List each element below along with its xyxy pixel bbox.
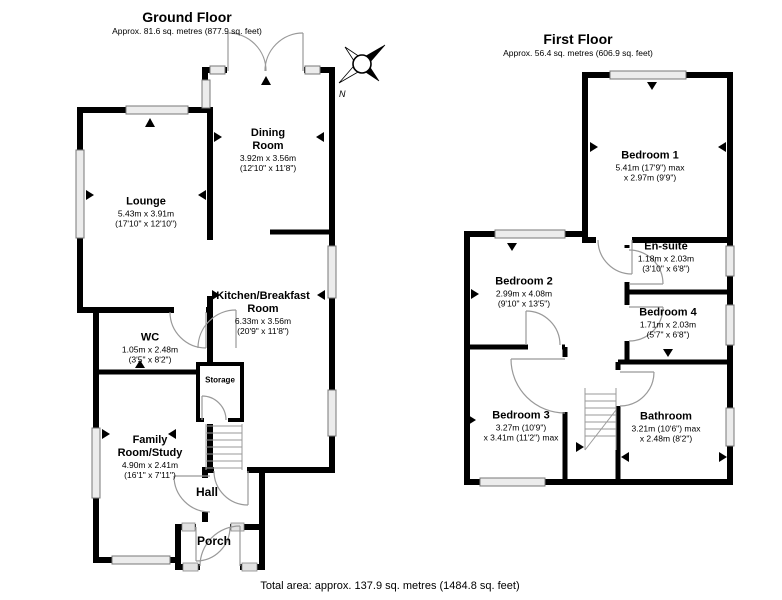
window bbox=[610, 71, 686, 79]
room-label-storage: Storage bbox=[205, 375, 235, 384]
ground-floor-title: Ground Floor bbox=[142, 9, 231, 25]
window bbox=[726, 246, 734, 276]
room-label-bedroom-1: Bedroom 1 5.41m (17'9") max x 2.97m (9'9… bbox=[616, 150, 685, 183]
window bbox=[202, 80, 210, 108]
window bbox=[76, 150, 84, 238]
room-label-dining-room: Dining Room 3.92m x 3.56m (12'10" x 11'8… bbox=[240, 127, 296, 173]
room-label-lounge: Lounge 5.43m x 3.91m (17'10" x 12'10") bbox=[115, 196, 177, 229]
room-label-en-suite: En-suite 1.18m x 2.03m (3'10" x 6'8") bbox=[638, 241, 694, 274]
window bbox=[305, 66, 320, 74]
window bbox=[495, 230, 565, 238]
storage-walls bbox=[198, 364, 242, 420]
window bbox=[480, 478, 545, 486]
floorplan-drawing: N bbox=[0, 0, 782, 600]
door-frame bbox=[183, 563, 198, 571]
compass-north-label: N bbox=[339, 89, 346, 99]
room-label-porch: Porch bbox=[197, 534, 231, 548]
compass-icon: N bbox=[339, 45, 385, 99]
room-label-bedroom-4: Bedroom 4 1.71m x 2.03m (5'7" x 6'8") bbox=[639, 307, 696, 340]
door-frame bbox=[182, 523, 195, 531]
room-label-hall: Hall bbox=[196, 485, 218, 499]
room-label-bathroom: Bathroom 3.21m (10'6") max x 2.48m (8'2"… bbox=[632, 411, 701, 444]
first-floor-title: First Floor bbox=[543, 31, 612, 47]
room-label-bedroom-2: Bedroom 2 2.99m x 4.08m (9'10" x 13'5") bbox=[495, 276, 552, 309]
window bbox=[112, 556, 170, 564]
room-label-wc: WC 1.05m x 2.48m (3'5" x 8'2") bbox=[122, 332, 178, 365]
window bbox=[328, 246, 336, 298]
window bbox=[726, 305, 734, 345]
room-label-kitchen-breakfast-room: Kitchen/Breakfast Room 6.33m x 3.56m (20… bbox=[205, 290, 321, 336]
window bbox=[328, 390, 336, 436]
window bbox=[726, 408, 734, 446]
first-floor-area: Approx. 56.4 sq. metres (606.9 sq. feet) bbox=[503, 48, 653, 58]
room-label-bedroom-3: Bedroom 3 3.27m (10'9") x 3.41m (11'2") … bbox=[484, 410, 559, 443]
window bbox=[92, 428, 100, 498]
door-frame bbox=[242, 563, 257, 571]
total-area-note: Total area: approx. 137.9 sq. metres (14… bbox=[260, 580, 519, 592]
window bbox=[126, 106, 188, 114]
room-label-family-room-study: Family Room/Study 4.90m x 2.41m (16'1" x… bbox=[108, 434, 192, 480]
floorplan-canvas: N Ground Floor Approx. 81.6 sq. metres (… bbox=[0, 0, 782, 600]
ground-floor-area: Approx. 81.6 sq. metres (877.9 sq. feet) bbox=[112, 26, 262, 36]
window bbox=[210, 66, 225, 74]
